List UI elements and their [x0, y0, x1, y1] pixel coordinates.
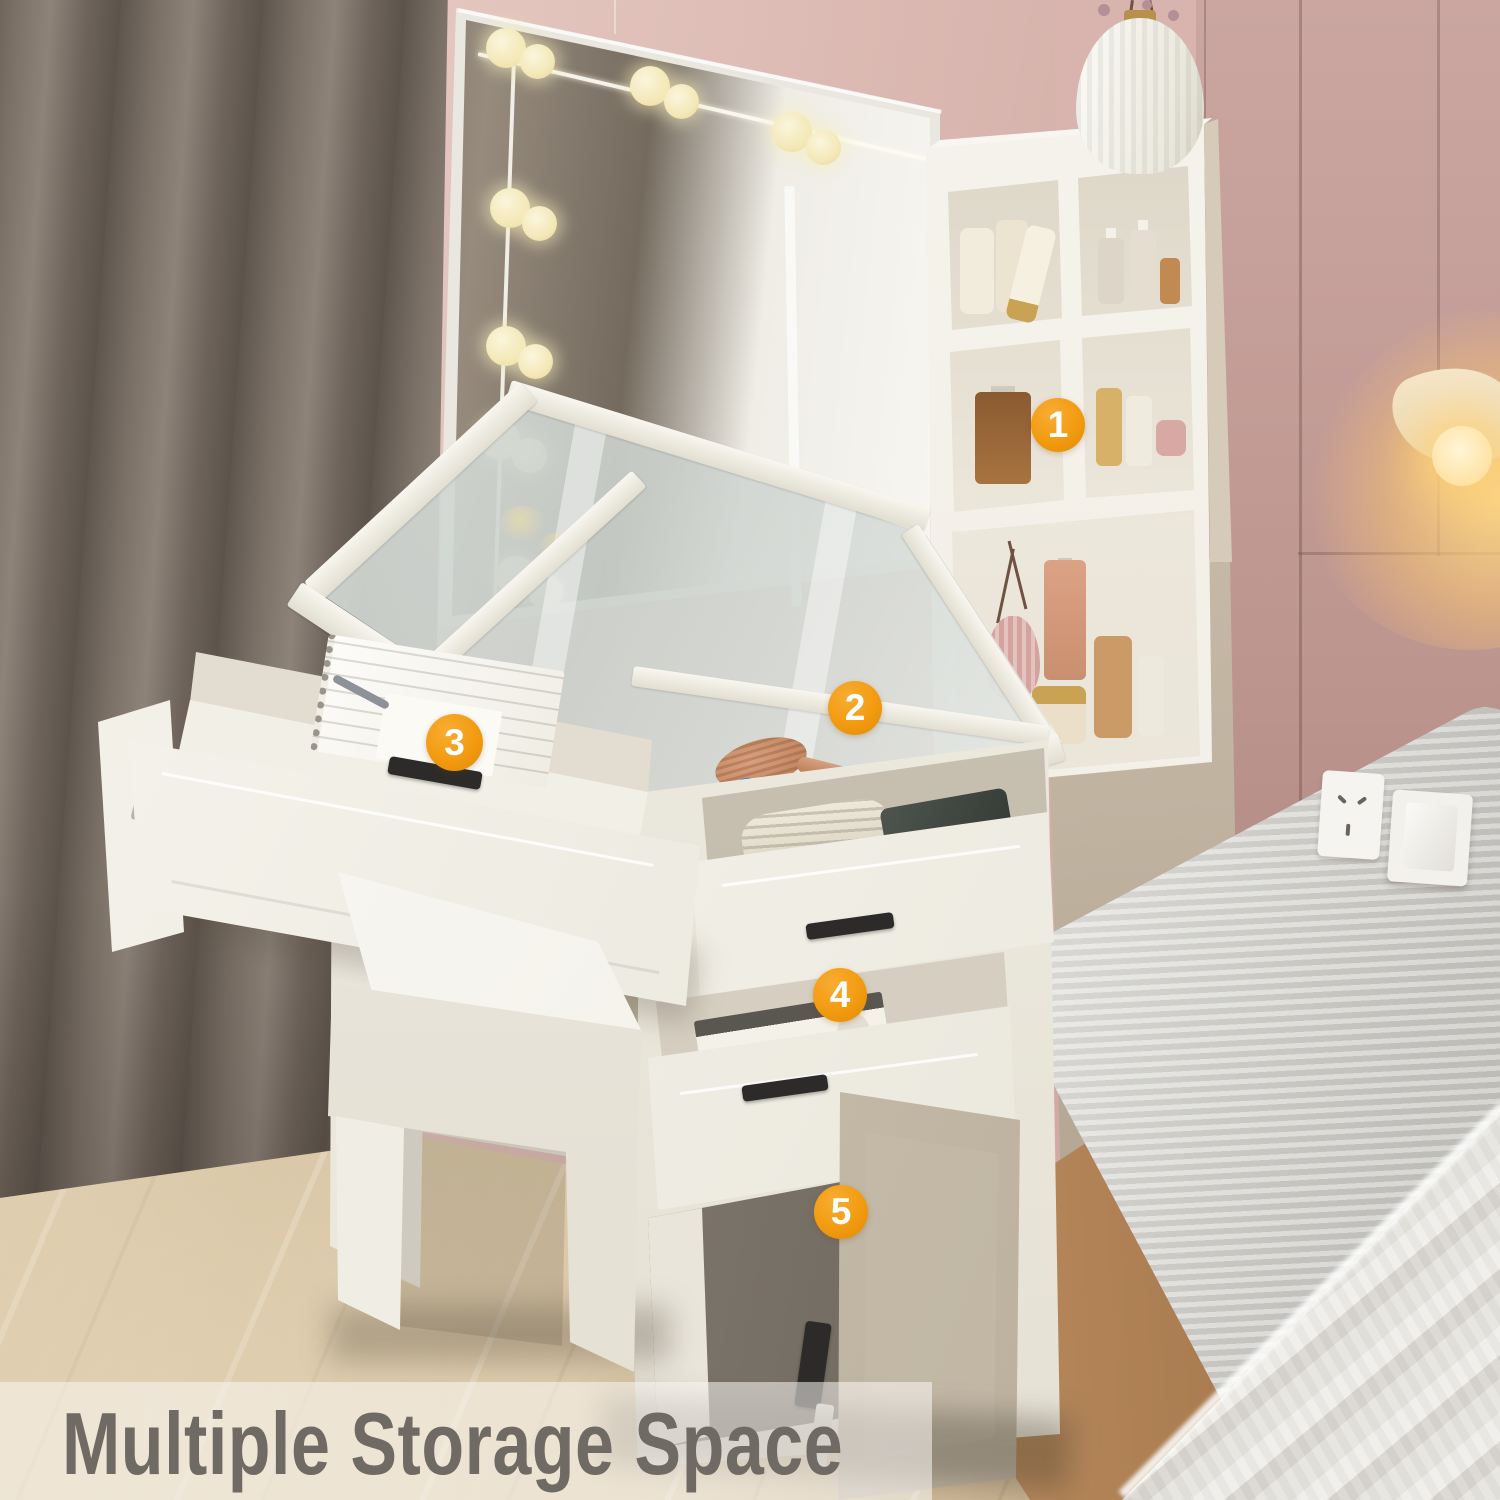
led-bulb: [806, 130, 841, 165]
callout-badge-5: 5: [814, 1185, 868, 1239]
led-bulb: [518, 344, 553, 379]
badge-number: 2: [845, 687, 866, 729]
dropper-bottle: [1098, 238, 1124, 304]
callout-badge-4: 4: [813, 968, 867, 1022]
leaf: [1098, 4, 1110, 16]
power-outlet: [1317, 770, 1385, 860]
wall-lamp-bulb: [1432, 426, 1492, 486]
bulb-reflection: [500, 506, 546, 540]
rose-gold-bottle: [1044, 560, 1086, 680]
badge-number: 5: [831, 1191, 852, 1233]
amber-bottle: [1094, 636, 1132, 738]
led-bulb: [664, 84, 699, 119]
led-bulb: [520, 44, 555, 79]
white-bottle: [1126, 396, 1152, 466]
pink-jar: [1156, 420, 1186, 456]
dropper-bottle: [1130, 230, 1156, 304]
badge-number: 1: [1048, 404, 1069, 446]
caption-banner: Multiple Storage Space: [0, 1382, 932, 1500]
badge-number: 3: [444, 722, 465, 764]
callout-badge-1: 1: [1031, 398, 1085, 452]
lotion-bottle: [960, 228, 994, 314]
amber-bottle: [1160, 258, 1180, 304]
perfume-bottle: [975, 392, 1031, 484]
leaf: [1168, 10, 1179, 21]
light-switch: [1387, 789, 1473, 886]
white-pump-bottle: [1138, 656, 1164, 736]
callout-badge-2: 2: [828, 681, 882, 735]
badge-number: 4: [830, 974, 851, 1016]
product-photo-stage: 1 2 3 4 5 Multiple Storage Space: [0, 0, 1500, 1500]
gold-spray-bottle: [1096, 388, 1122, 466]
leaf: [1142, 0, 1152, 10]
callout-badge-3: 3: [426, 714, 483, 771]
caption-text: Multiple Storage Space: [62, 1400, 843, 1488]
led-bulb: [522, 206, 557, 241]
led-power-cord: [614, 0, 616, 34]
